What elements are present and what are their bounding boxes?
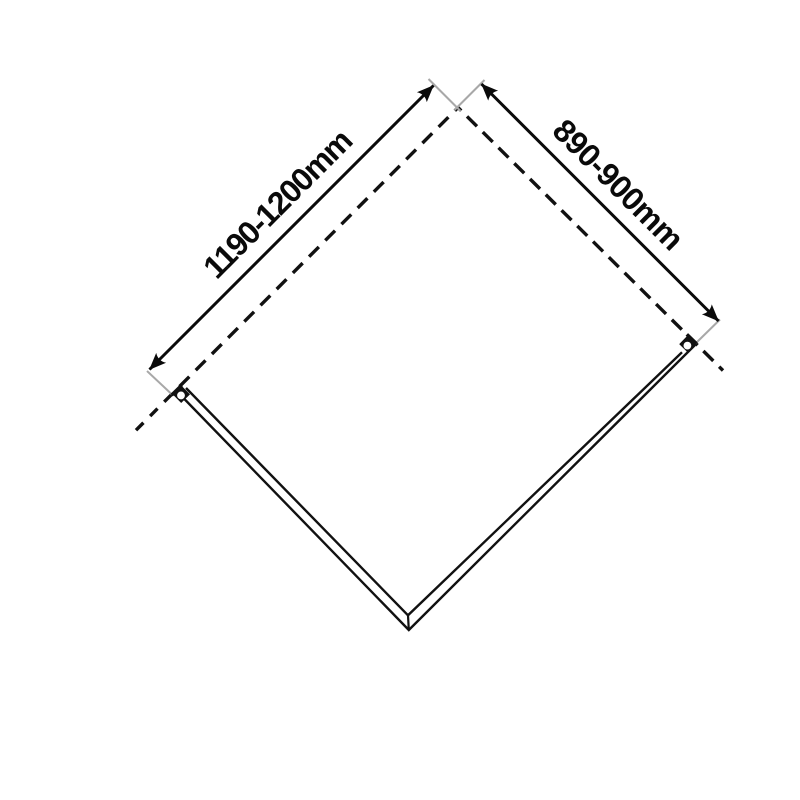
svg-text:1190-1200mm: 1190-1200mm xyxy=(196,123,359,286)
svg-text:890-900mm: 890-900mm xyxy=(546,112,691,257)
